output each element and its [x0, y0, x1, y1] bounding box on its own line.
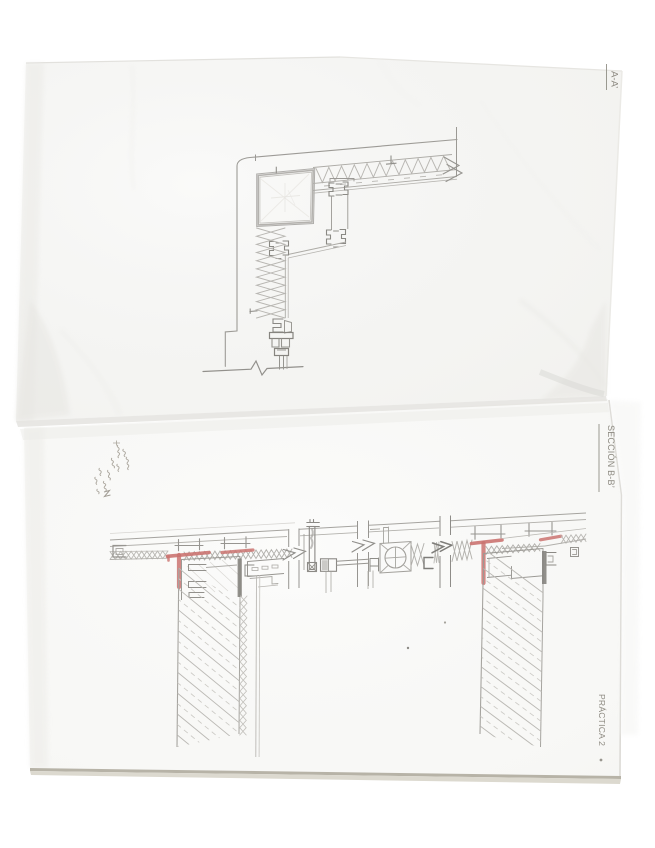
- svg-text:A-A’: A-A’: [609, 71, 620, 88]
- svg-text:PRÁCTICA 2: PRÁCTICA 2: [597, 694, 607, 746]
- svg-text:SECCIÓN B-B’: SECCIÓN B-B’: [606, 425, 616, 488]
